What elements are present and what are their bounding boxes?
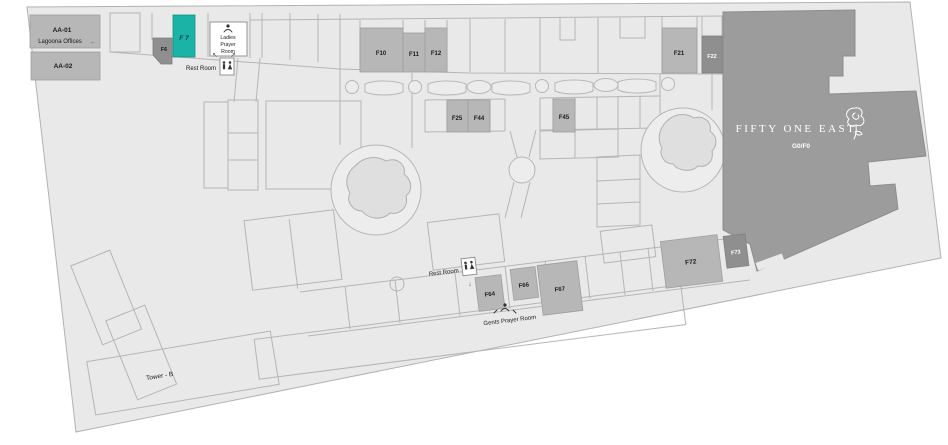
f45-label: F45 xyxy=(559,115,570,121)
f12-label: F12 xyxy=(431,51,442,57)
f11-label: F11 xyxy=(409,52,420,58)
f21-label: F21 xyxy=(674,51,685,57)
f73-label: F73 xyxy=(731,249,741,256)
restroom-icon xyxy=(461,257,477,276)
unit-f45[interactable]: F45 xyxy=(553,99,575,132)
unit-f11[interactable]: F11 xyxy=(403,33,425,72)
aa01-label: AA-01 xyxy=(53,27,72,34)
restroom-icon xyxy=(220,58,234,75)
f10-shape xyxy=(360,28,403,72)
courtyard-east-island xyxy=(659,115,716,171)
ladies-prayer-room: Ladies Prayer Room xyxy=(210,22,247,56)
floor-plan-svg: FIFTY ONE EAST G0/F0 AA-01 Lagoona Offic… xyxy=(0,0,948,445)
f22-label: F22 xyxy=(707,54,716,60)
unit-f44[interactable]: F44 xyxy=(468,100,490,132)
up-left-arrow-icon: ↖ xyxy=(212,52,217,59)
unit-f25[interactable]: F25 xyxy=(447,100,468,132)
unit-f73[interactable]: F73 xyxy=(723,234,749,268)
f72-label: F72 xyxy=(685,258,697,266)
unit-f10[interactable]: F10 xyxy=(360,28,403,72)
courtyard-small xyxy=(509,157,535,183)
aa01-sublabel: Lagoona Offices xyxy=(38,39,82,45)
unit-aa02[interactable]: AA-02 xyxy=(31,52,100,80)
unit-f21[interactable]: F21 xyxy=(662,28,697,73)
f12-shape xyxy=(425,28,447,72)
courtyard-west-island xyxy=(347,158,411,219)
unit-aa01[interactable]: AA-01 Lagoona Offices ← xyxy=(30,15,100,48)
fifty-one-east-floor: G0/F0 xyxy=(792,143,810,150)
unit-f67[interactable]: F67 xyxy=(537,261,583,316)
ladies-prayer-line2: Prayer xyxy=(220,42,236,48)
unit-f64[interactable]: F64 xyxy=(475,275,505,312)
f10-label: F10 xyxy=(376,51,387,57)
unit-f7-selected[interactable]: F 7 xyxy=(173,15,195,57)
f6-label: F6 xyxy=(161,47,167,53)
rest-room-top-label: Rest Room xyxy=(186,66,216,72)
f44-label: F44 xyxy=(474,116,485,122)
left-arrow-icon: ← xyxy=(90,39,97,46)
unit-f22[interactable]: F22 xyxy=(702,36,722,73)
ladies-prayer-line1: Ladies xyxy=(220,35,236,41)
f25-label: F25 xyxy=(452,116,463,122)
fifty-one-east-name: FIFTY ONE EAST xyxy=(736,123,857,135)
down-arrow-icon: ↓ xyxy=(468,281,471,288)
unit-f72[interactable]: F72 xyxy=(660,235,722,289)
mall-floor-plan-viewer: FIFTY ONE EAST G0/F0 AA-01 Lagoona Offic… xyxy=(0,0,948,445)
aa02-label: AA-02 xyxy=(54,63,73,70)
f7-label: F 7 xyxy=(179,35,189,42)
unit-f12[interactable]: F12 xyxy=(425,28,447,72)
unit-f66[interactable]: F66 xyxy=(510,267,539,301)
